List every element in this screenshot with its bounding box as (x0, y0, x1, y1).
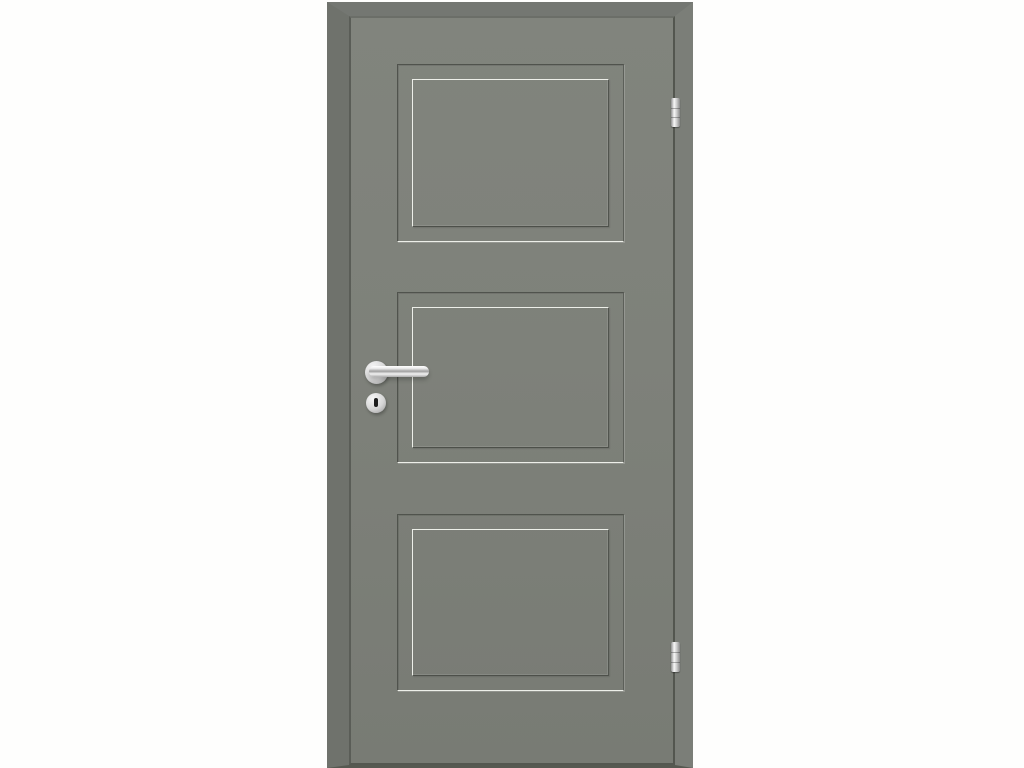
door-panel-middle (397, 292, 624, 463)
door-panel-middle-field (412, 307, 609, 448)
door-panel-bottom-field (412, 529, 609, 676)
door-panel-bottom (397, 514, 624, 691)
door-panel-top (397, 64, 624, 242)
keyhole-slot (374, 398, 378, 407)
top-hinge-icon (671, 98, 680, 127)
hinge-knuckle-line (671, 662, 680, 663)
hinge-knuckle-line (671, 108, 680, 109)
bottom-hinge-icon (671, 642, 680, 672)
door-panel-top-field (412, 79, 609, 227)
door (327, 2, 693, 768)
keyhole-escutcheon (366, 393, 386, 413)
lever-handle (369, 366, 429, 377)
door-face (349, 16, 675, 765)
hinge-knuckle-line (671, 117, 680, 118)
hinge-knuckle-line (671, 652, 680, 653)
product-photo (0, 0, 1024, 768)
